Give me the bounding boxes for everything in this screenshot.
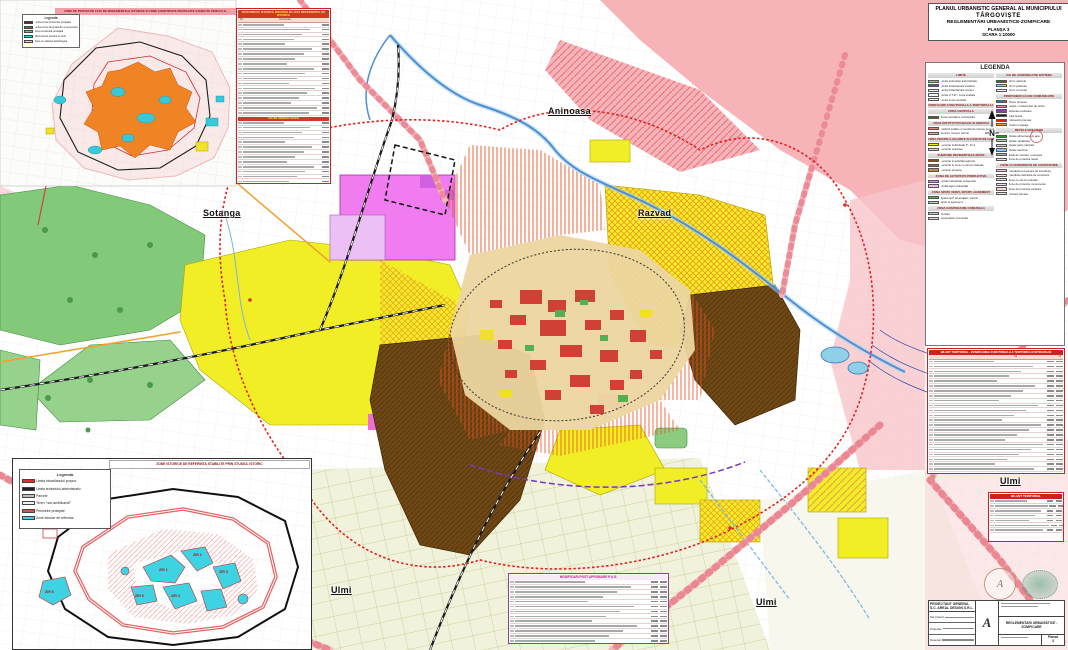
town-label-razvad: Razvad [638, 208, 671, 218]
legend-swatch [928, 196, 939, 199]
inset-legend-swatch [22, 516, 35, 520]
inset-legend-item: Parcele [22, 492, 109, 499]
inset-legend-item: Zone cu valoare arheologica [24, 39, 78, 44]
zir-label: ZIR 6 [45, 590, 54, 594]
inset-legend-swatch [22, 501, 35, 505]
zir-label: ZIR 1 [159, 568, 168, 572]
legend-item-label: Largiri / modernizari de strazi [1009, 104, 1045, 108]
legend-item-label: Statii de epurare / pompare [1009, 153, 1043, 157]
areal-design-stamp-icon: A [984, 568, 1016, 600]
legend-item-label: Gospodarie comunala [941, 216, 968, 220]
town-label-aninoasa: Aninoasa [548, 106, 591, 116]
inset-legend-swatch [24, 40, 33, 43]
legend-item-label: Retele electrice [1009, 148, 1028, 152]
red-stamp-icon [1030, 130, 1043, 143]
legend-swatch [928, 84, 939, 87]
modificari-table: MODIFICARI POST APROBARE P.U.G. [508, 573, 669, 644]
legend-swatch [996, 89, 1007, 92]
plan-subtitle: REGLEMENTĂRI URBANISTICE-ZONIFICARE [930, 20, 1067, 26]
legend-item-label: Limita intravilanului propus [941, 88, 974, 92]
legend-section: RETELE EDILITARERetele alimentare cu apa… [996, 128, 1062, 161]
table-row [929, 472, 1063, 474]
legend-swatch [928, 132, 939, 135]
legend-swatch [996, 183, 1007, 186]
legend-item-label: Zone de protectie retele [1009, 157, 1039, 161]
inset-bottom-header: ZONE ISTORICE DE REFERINTA STABILITE PRI… [109, 460, 310, 469]
legend-item-label: Drum comunal [1009, 88, 1027, 92]
inset-legend-swatch [22, 487, 35, 491]
legend-section: ZONA SPATII VERZI, SPORT, AGREMENTSpatii… [928, 190, 994, 205]
legend-swatch [928, 164, 939, 167]
legend-item-label: Cimitire [941, 212, 950, 216]
legend-item-label: Limita intravilanului existent [941, 84, 975, 88]
cartouche-beneficiary [999, 601, 1064, 617]
inset-legend-swatch [22, 494, 35, 498]
inset-top-legend: Legenda Limita zonei construite protejat… [22, 14, 80, 48]
legend-item-label: Artere propuse [1009, 100, 1028, 104]
legend-item-label: Zone cu riscuri naturale [1009, 178, 1038, 182]
inset-legend-label: Limita zonei construite protejate [35, 21, 72, 24]
inset-legend-label: Zone cu valoare arheologica [35, 40, 68, 43]
town-label-ulmi-south: Ulmi [756, 597, 777, 607]
legend-section-header: ZONE CU INTERDICTII DE CONSTRUIRE [996, 163, 1062, 168]
legend-section-header: ZONA DE ACTIVITATI PRODUCTIVE [928, 174, 994, 179]
legend-section: ZONE CU INTERDICTII DE CONSTRUIREInterdi… [996, 163, 1062, 196]
legend-section-header: ZONA GOSPODARIE COMUNALA [928, 206, 994, 211]
legend-item: Gospodarie comunala [928, 216, 994, 221]
legend-item-label: Retele gaze naturale [1009, 143, 1035, 147]
legend-section-header: RETELE EDILITARE [996, 128, 1062, 133]
bilant-table: BILANT TERITORIAL - ZONIFICAREA FUNCTION… [927, 348, 1065, 474]
plan-urbanistic-map: ZONE DE PROTECTIE FATA DE MONUMENTELE IS… [0, 0, 1068, 650]
legend-item-label: Zone de protectie sanitara [1009, 187, 1042, 191]
legend-swatch [928, 212, 939, 215]
legend-item-label: Sport si agrement [941, 200, 963, 204]
legend-swatch [928, 89, 939, 92]
legend-section-header: ZONIFICARE FUNCTIONALA A TERITORIULUI IN… [928, 103, 994, 108]
plan-title: PLANUL URBANISTIC GENERAL AL MUNICIPIULU… [930, 6, 1067, 13]
legend-swatch [928, 148, 939, 151]
cartouche: PROIECTANT GENERAL S.C. AREAL DESIGN S.R… [928, 600, 1065, 646]
legend-swatch [928, 159, 939, 162]
legend-item-label: Poduri si pasaje [1009, 123, 1029, 127]
town-label-ulmi-east: Ulmi [1000, 476, 1021, 486]
legend-right-column: CAI DE COMUNICATIE RUTIERADrum nationalD… [995, 72, 1063, 220]
legend-item-label: Retele canalizare [1009, 139, 1031, 143]
legend-item-label: Locuinte in zone cu riscuri naturale [941, 163, 984, 167]
inset-legend-swatch [22, 479, 35, 483]
legend-swatch [928, 116, 939, 119]
legend-swatch [996, 105, 1007, 108]
legend-item-label: Drum national [1009, 79, 1026, 83]
zir-label: ZIR 5 [135, 594, 144, 598]
legend-item-label: Drum judetean [1009, 84, 1027, 88]
legend-section-header: CAI DE COMUNICATIE RUTIERA [996, 73, 1062, 78]
legend-item-label: Limita U.T.R. / zona studiata [941, 93, 976, 97]
legend-item-label: Spatii verzi amenajate, parcuri [941, 196, 979, 200]
inset-bottom-legend: Legenda Limita intravilanului propusLimi… [19, 469, 111, 529]
title-block: PLANUL URBANISTIC GENERAL AL MUNICIPIULU… [928, 3, 1068, 41]
north-arrow: N [984, 110, 1000, 161]
zir-label: ZIR 2 [193, 553, 202, 557]
legend-item: Sport si agrement [928, 200, 994, 205]
legend-swatch [928, 217, 939, 220]
company-logo: A [983, 615, 992, 631]
legend-section: LIMITELimita teritoriului administrativL… [928, 73, 994, 101]
legend-item-label: Zona centrala a municipiului [941, 115, 976, 119]
town-label-sotanga: Sotanga [203, 208, 241, 218]
inset-legend-label: Monumente istorice si situri [35, 35, 66, 38]
inset-legend-item: Teren "non-aedificandi" [22, 500, 109, 507]
inset-legend-label: Zone istorice de referinta [36, 516, 74, 520]
legend-item-label: Zone de protectie monumente [1009, 182, 1046, 186]
legend-item-label: Locuinte individuale P - P+2 [941, 143, 976, 147]
legend-section: ZONA GOSPODARIE COMUNALACimitireGospodar… [928, 206, 994, 221]
legend-swatch [928, 168, 939, 171]
legend-item-label: Limita zonei centrale [941, 98, 967, 102]
table-row [238, 179, 329, 184]
legend-swatch [996, 80, 1007, 83]
legend-item-label: Locuinte colective [941, 147, 963, 151]
inset-legend-swatch [24, 30, 33, 33]
legend-swatch [928, 127, 939, 130]
inset-legend-label: Limita zonei de protectie a monumentelor [35, 26, 79, 29]
zir-label: ZIR 3 [219, 570, 228, 574]
north-letter: N [989, 129, 995, 138]
monuments-table-title: MONUMENTE ISTORICE INSCRISE IN LISTA MON… [238, 10, 329, 18]
inset-legend-item: Limita teritoriului administrativ [22, 485, 109, 492]
cartouche-role-row: Desenat [929, 635, 975, 645]
legend-section: ZONIFICARE FUNCTIONALA A TERITORIULUI IN… [928, 103, 994, 108]
legend-title: LEGENDA [927, 64, 1063, 72]
legend-item-label: Unitati industriale si depozite [941, 179, 977, 183]
ulmi-table: BILANT TERITORIAL [988, 492, 1064, 542]
legend-item-label: Unitati agro-industriale [941, 184, 969, 188]
inset-legend-swatch [24, 21, 33, 24]
table-row [990, 528, 1062, 533]
legend-section-header: LIMITE [928, 73, 994, 78]
inset-legend-label: Teren "non-aedificandi" [36, 501, 71, 505]
legend-swatch [996, 192, 1007, 195]
legend-swatch [996, 169, 1007, 172]
legend-item-label: Culoare tehnice [1009, 192, 1029, 196]
town-label-ulmi-west: Ulmi [331, 585, 352, 595]
legend-swatch [996, 84, 1007, 87]
inset-legend-label: Limita teritoriului administrativ [36, 487, 81, 491]
legend-item-label: Varianta ocolitoare [1009, 109, 1032, 113]
cartouche-role-row: Proiectat [929, 623, 975, 634]
inset-legend-label: Limita intravilanului propus [36, 479, 76, 483]
legend-item-label: Intersectii propuse [1009, 118, 1032, 122]
legend-item: Poduri si pasaje [996, 123, 1062, 128]
inset-legend-label: Zona construita protejata [35, 30, 64, 33]
legend-swatch [928, 201, 939, 204]
legend-item: Unitati agro-industriale [928, 184, 994, 189]
legend-swatch [928, 143, 939, 146]
legend-item-label: Interdictie definitiva de construire [1009, 173, 1050, 177]
legend-swatch [996, 174, 1007, 177]
inset-legend-item: Limita intravilanului propus [22, 478, 109, 485]
legend-section: CAI DE COMUNICATIE RUTIERADrum nationalD… [996, 73, 1062, 92]
inset-legend-label: Perimetre protejate [36, 509, 65, 513]
legend-item: Zone de protectie retele [996, 157, 1062, 162]
green-approval-stamp-icon [1022, 570, 1058, 599]
monuments-table: MONUMENTE ISTORICE INSCRISE IN LISTA MON… [236, 8, 331, 184]
legend-item-label: Locuinte propuse [941, 168, 962, 172]
inset-legend-item: Perimetre protejate [22, 507, 109, 514]
inset-legend-item: Zone istorice de referinta [22, 514, 109, 521]
legend-item: Drum comunal [996, 88, 1062, 93]
inset-legend-label: Parcele [36, 494, 48, 498]
legend-swatch [928, 98, 939, 101]
legend-item-label: Locuinte si activitati agricole [941, 159, 976, 163]
legend-item: Locuinte propuse [928, 168, 994, 173]
bilant-table-title: BILANT TERITORIAL - ZONIFICAREA FUNCTION… [929, 350, 1063, 354]
cartouche-sheet: Plansa 3 [1042, 635, 1064, 645]
cartouche-company: PROIECTANT GENERAL S.C. AREAL DESIGN S.R… [929, 601, 975, 612]
legend-swatch [928, 180, 939, 183]
legend-section: PROPUNERI CAI DE COMUNICATIEArtere propu… [996, 94, 1062, 127]
legend-section-header: ZONA SPATII VERZI, SPORT, AGREMENT [928, 190, 994, 195]
scale: SCARA 1:10000 [930, 32, 1067, 38]
legend-swatch [928, 80, 939, 83]
legend-item-label: Interdictie temporara de construire [1009, 169, 1052, 173]
legend-item-label: Servicii, comert, birouri [941, 131, 969, 135]
legend-swatch [928, 93, 939, 96]
cartouche-project-title: REGLEMENTARI URBANISTICE - ZONIFICARE [999, 617, 1064, 635]
legend-item-label: Limita teritoriului administrativ [941, 79, 978, 83]
inset-legend-swatch [22, 509, 35, 513]
legend-item: Culoare tehnice [996, 191, 1062, 196]
legend-item-label: Cale ferata [1009, 114, 1023, 118]
legend-item: Limita zonei centrale [928, 97, 994, 102]
legend-swatch [928, 184, 939, 187]
cartouche-date [999, 635, 1042, 645]
table-row [238, 111, 329, 116]
legend-section: ZONA DE ACTIVITATI PRODUCTIVEUnitati ind… [928, 174, 994, 189]
zir-label: ZIR 4 [171, 594, 180, 598]
inset-legend-swatch [24, 35, 33, 38]
inset-legend-swatch [24, 26, 33, 29]
legend-swatch [996, 100, 1007, 103]
inset-bottom-panel: ZIR 1 ZIR 2 ZIR 3 ZIR 4 ZIR 5 ZIR 6 ZONE… [12, 458, 312, 650]
legend-panel: LEGENDA LIMITELimita teritoriului admini… [925, 62, 1065, 346]
cartouche-role-row: Sef proiect [929, 612, 975, 623]
legend-swatch [996, 187, 1007, 190]
legend-section-header: PROPUNERI CAI DE COMUNICATIE [996, 94, 1062, 99]
legend-swatch [996, 178, 1007, 181]
inset-top-header: ZONE DE PROTECTIE FATA DE MONUMENTELE IS… [55, 8, 236, 15]
